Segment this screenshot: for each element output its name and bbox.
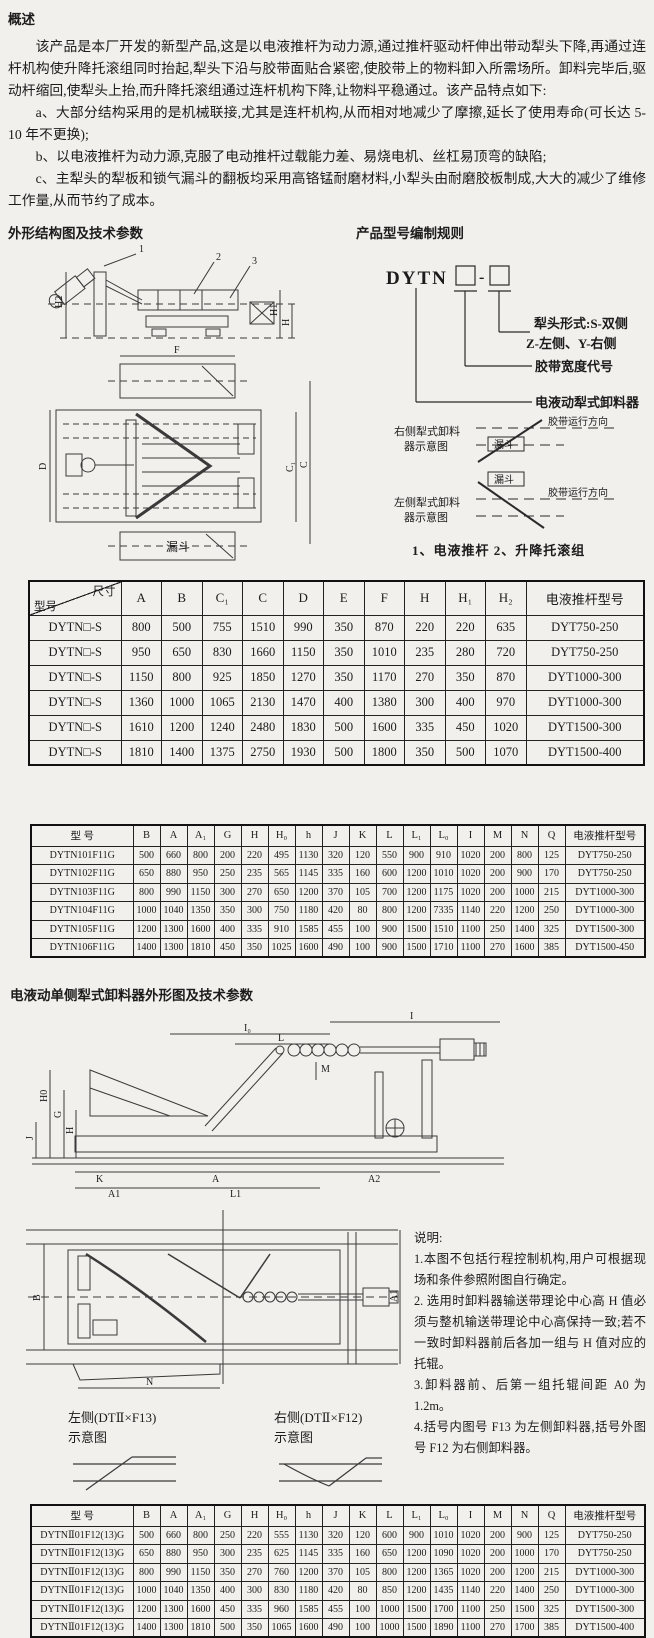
left-schematic-title2: 器示意图	[404, 510, 448, 524]
value-cell: 80	[349, 1582, 376, 1601]
value-cell: 880	[160, 1545, 187, 1564]
value-cell: 990	[283, 615, 324, 640]
column-header: K	[349, 825, 376, 846]
plow-form2-label: Z-左侧、Y-右侧	[526, 336, 617, 351]
callout-2-label: 2	[216, 252, 221, 263]
dimensions-table-dytn-f11g: 型 号BAA₁GHH₀hJKLL₁L₀IMNQ电液推杆型号DYTN101F11G…	[30, 824, 646, 958]
column-header: A₁	[187, 1505, 214, 1526]
value-cell: 1800	[364, 740, 405, 765]
dim-l1-label: L1	[230, 1189, 241, 1198]
value-cell: 800	[162, 665, 203, 690]
value-cell: 100	[349, 939, 376, 958]
value-cell: 350	[324, 665, 365, 690]
value-cell: 2750	[243, 740, 284, 765]
left-side-mini-drawing	[68, 1448, 183, 1494]
table-row: DYTNⅡ01F12(13)G1000104013504003008301180…	[31, 1582, 645, 1601]
value-cell: 500	[324, 740, 365, 765]
dim-c1-label: C₁	[285, 462, 296, 472]
value-cell: DYT750-250	[565, 1545, 645, 1564]
right-side-mini-block: 右侧(DTⅡ×F12) 示意图	[274, 1408, 410, 1494]
dim-a-label: A	[212, 1174, 220, 1185]
column-header: H₀	[268, 1505, 295, 1526]
value-cell: 200	[484, 1545, 511, 1564]
note-item-4: 4.括号内图号 F13 为左侧卸料器,括号外图号 F12 为右侧卸料器。	[414, 1417, 646, 1459]
value-cell: 1300	[160, 920, 187, 939]
value-cell: 350	[324, 640, 365, 665]
value-cell: 830	[202, 640, 243, 665]
value-cell: 1130	[295, 846, 322, 865]
value-cell: 900	[403, 1526, 430, 1545]
value-cell: 1140	[457, 1582, 484, 1601]
column-header: L₀	[430, 825, 457, 846]
column-header: A	[160, 825, 187, 846]
value-cell: 80	[349, 902, 376, 921]
value-cell: 1200	[403, 865, 430, 884]
plan-view-figure: B N A1 左侧(DTⅡ×F13) 示意图	[8, 1202, 410, 1494]
column-header: A	[121, 581, 162, 615]
value-cell: 120	[349, 846, 376, 865]
value-cell: 1300	[160, 939, 187, 958]
column-header: H	[241, 1505, 268, 1526]
value-cell: 760	[268, 1563, 295, 1582]
value-cell: 490	[322, 939, 349, 958]
column-header: M	[484, 825, 511, 846]
value-cell: 1350	[187, 1582, 214, 1601]
value-cell: 220	[405, 615, 446, 640]
value-cell: 125	[538, 1526, 565, 1545]
value-cell: 1150	[187, 1563, 214, 1582]
value-cell: 1175	[430, 883, 457, 902]
value-cell: 650	[133, 1545, 160, 1564]
value-cell: 1180	[295, 1582, 322, 1601]
plow-form-label: 犁头形式:S-双侧	[534, 316, 628, 331]
table-row: DYTNⅡ01F12(13)G8009901150350270760120037…	[31, 1563, 645, 1582]
value-cell: 200	[484, 883, 511, 902]
column-header: H	[405, 581, 446, 615]
value-cell: 700	[376, 883, 403, 902]
column-header: h	[295, 825, 322, 846]
value-cell: 1020	[457, 1526, 484, 1545]
structural-drawing: 1 2 3 H2 H1 H F D C₁ C 漏斗	[8, 242, 324, 564]
value-cell: 300	[241, 1582, 268, 1601]
value-cell: 2480	[243, 715, 284, 740]
table-row: DYTNⅡ01F12(13)G6508809503002356251145335…	[31, 1545, 645, 1564]
table-row: DYTN102F11G65088095025023556511453351606…	[31, 865, 645, 884]
value-cell: 1040	[160, 902, 187, 921]
column-header: D	[283, 581, 324, 615]
right-side-mini-drawing	[274, 1448, 389, 1494]
value-cell: 1710	[430, 939, 457, 958]
notes-panel: 说明: 1.本图不包括行程控制机构,用户可根据现场和条件参照附图自行确定。 2.…	[410, 1202, 646, 1494]
value-cell: 335	[322, 865, 349, 884]
value-cell: 800	[376, 1563, 403, 1582]
value-cell: 120	[349, 1526, 376, 1545]
model-cell: DYTN104F11G	[31, 902, 133, 921]
value-cell: 1040	[160, 1582, 187, 1601]
value-cell: 170	[538, 865, 565, 884]
value-cell: 450	[214, 939, 241, 958]
value-cell: 400	[214, 1582, 241, 1601]
value-cell: 1200	[511, 902, 538, 921]
dim-l-label: L	[278, 1033, 284, 1044]
value-cell: 200	[484, 1563, 511, 1582]
model-cell: DYTNⅡ01F12(13)G	[31, 1526, 133, 1545]
right-belt-direction-label: 胶带运行方向	[548, 415, 608, 428]
column-header: L	[376, 1505, 403, 1526]
value-cell: 500	[162, 615, 203, 640]
value-cell: 1200	[295, 1563, 322, 1582]
column-header: L₁	[403, 1505, 430, 1526]
belt-width-label: 胶带宽度代号	[535, 359, 613, 374]
column-header: H	[241, 825, 268, 846]
table-row: DYTNⅡ01F12(13)G1400130018105003501065160…	[31, 1619, 645, 1638]
value-cell: 100	[349, 1619, 376, 1638]
plan-view-drawing: B N A1	[8, 1202, 408, 1398]
value-cell: 235	[241, 865, 268, 884]
value-cell: 370	[322, 883, 349, 902]
value-cell: 1180	[295, 902, 322, 921]
value-cell: 720	[486, 640, 527, 665]
value-cell: 1270	[283, 665, 324, 690]
value-cell: DYT1000-300	[565, 902, 645, 921]
value-cell: 335	[241, 920, 268, 939]
column-header: L₁	[403, 825, 430, 846]
value-cell: 870	[486, 665, 527, 690]
value-cell: 970	[486, 690, 527, 715]
side-view-drawing: I I₀ L M H0 G H J K A A2 A1 L1	[20, 1010, 512, 1198]
column-header: I	[457, 1505, 484, 1526]
dim-i-label: I	[410, 1011, 413, 1022]
value-cell: 300	[214, 1545, 241, 1564]
value-cell: 1400	[162, 740, 203, 765]
value-cell: 565	[268, 865, 295, 884]
value-cell: 1200	[511, 1563, 538, 1582]
model-rule-column: 产品型号编制规则 DYTN - 犁头形式:S-双侧	[328, 222, 646, 564]
figure-legend: 1、电液推杆 2、升降托滚组	[412, 540, 646, 559]
value-cell: 1240	[202, 715, 243, 740]
table-row: DYTN106F11G14001300181045035010251600490…	[31, 939, 645, 958]
value-cell: 1065	[202, 690, 243, 715]
value-cell: 270	[405, 665, 446, 690]
value-cell: 660	[160, 1526, 187, 1545]
left-side-caption: 示意图	[68, 1428, 204, 1448]
value-cell: 800	[376, 902, 403, 921]
value-cell: 830	[268, 1582, 295, 1601]
column-header: h	[295, 1505, 322, 1526]
outline-figure-column: 外形结构图及技术参数	[8, 222, 328, 564]
model-cell: DYTNⅡ01F12(13)G	[31, 1563, 133, 1582]
hopper-label: 漏斗	[166, 540, 190, 554]
value-cell: 500	[214, 1619, 241, 1638]
value-cell: 300	[241, 902, 268, 921]
value-cell: DYT750-250	[526, 615, 644, 640]
value-cell: 800	[133, 883, 160, 902]
value-cell: 420	[322, 902, 349, 921]
value-cell: 320	[322, 846, 349, 865]
dim-h-label: H	[65, 1127, 76, 1134]
value-cell: 1610	[121, 715, 162, 740]
value-cell: 1020	[457, 865, 484, 884]
feature-a-paragraph: a、大部分结构采用的是机械联接,尤其是连杆机构,从而相对地减少了摩擦,延长了使用…	[8, 102, 646, 146]
callout-3-label: 3	[252, 256, 257, 267]
value-cell: 550	[376, 846, 403, 865]
value-cell: 1360	[121, 690, 162, 715]
dim-a1-right-label: A1	[389, 1290, 400, 1302]
value-cell: 950	[187, 865, 214, 884]
value-cell: 235	[405, 640, 446, 665]
value-cell: 1375	[202, 740, 243, 765]
column-header: G	[214, 825, 241, 846]
value-cell: 650	[133, 865, 160, 884]
value-cell: 400	[214, 920, 241, 939]
value-cell: 200	[484, 846, 511, 865]
column-header: B	[133, 825, 160, 846]
table-row: DYTN104F11G10001040135035030075011804208…	[31, 902, 645, 921]
right-side-caption: 示意图	[274, 1428, 410, 1448]
value-cell: 925	[202, 665, 243, 690]
value-cell: 1000	[511, 883, 538, 902]
model-cell: DYTN□-S	[29, 615, 121, 640]
dim-c-label: C	[299, 461, 310, 468]
value-cell: 1400	[133, 1619, 160, 1638]
value-cell: 870	[364, 615, 405, 640]
value-cell: 625	[268, 1545, 295, 1564]
model-cell: DYTN105F11G	[31, 920, 133, 939]
value-cell: 1010	[430, 865, 457, 884]
column-header: B	[133, 1505, 160, 1526]
value-cell: 1150	[187, 883, 214, 902]
value-cell: 1500	[403, 939, 430, 958]
header-row: 尺寸型号ABC₁CDEFHH₁H₂电液推杆型号	[29, 581, 644, 615]
value-cell: 1100	[457, 920, 484, 939]
value-cell: 1200	[295, 883, 322, 902]
value-cell: 1070	[486, 740, 527, 765]
note-item-2: 2. 选用时卸料器输送带理论中心高 H 值必须与整机输送带理论中心高保持一致;若…	[414, 1291, 646, 1375]
value-cell: 280	[445, 640, 486, 665]
column-header: C₁	[202, 581, 243, 615]
model-cell: DYTNⅡ01F12(13)G	[31, 1582, 133, 1601]
note-item-3: 3.卸料器前、后第一组托辊间距 A0 为 1.2m。	[414, 1375, 646, 1417]
value-cell: 100	[349, 920, 376, 939]
value-cell: 900	[376, 920, 403, 939]
value-cell: 385	[538, 1619, 565, 1638]
column-header: 电液推杆型号	[565, 1505, 645, 1526]
side-view-figure: I I₀ L M H0 G H J K A A2 A1 L1	[20, 1010, 646, 1198]
value-cell: 1150	[283, 640, 324, 665]
value-cell: 1300	[160, 1619, 187, 1638]
value-cell: 450	[445, 715, 486, 740]
column-header: N	[511, 1505, 538, 1526]
value-cell: 950	[187, 1545, 214, 1564]
value-cell: 320	[322, 1526, 349, 1545]
value-cell: 1000	[133, 1582, 160, 1601]
table-row: DYTN□-S181014001375275019305001800350500…	[29, 740, 644, 765]
dim-f-label: F	[174, 345, 180, 356]
column-header: H₀	[268, 825, 295, 846]
value-cell: 1830	[283, 715, 324, 740]
value-cell: 220	[241, 846, 268, 865]
value-cell: 900	[403, 846, 430, 865]
value-cell: 1470	[283, 690, 324, 715]
right-side-title: 右侧(DTⅡ×F12)	[274, 1408, 410, 1428]
value-cell: 455	[322, 920, 349, 939]
dimensions-table-dytn2-f12: 型 号BAA₁GHH₀hJKLL₁L₀IMNQ电液推杆型号DYTNⅡ01F12(…	[30, 1504, 646, 1638]
model-cell: DYTN□-S	[29, 665, 121, 690]
value-cell: 900	[511, 865, 538, 884]
value-cell: 490	[322, 1619, 349, 1638]
value-cell: 1170	[364, 665, 405, 690]
value-cell: 1000	[133, 902, 160, 921]
column-header: Q	[538, 825, 565, 846]
value-cell: 1600	[364, 715, 405, 740]
model-dash: -	[479, 269, 484, 286]
model-cell: DYTN102F11G	[31, 865, 133, 884]
value-cell: 2130	[243, 690, 284, 715]
outline-section-heading: 外形结构图及技术参数	[8, 222, 328, 242]
column-header: N	[511, 825, 538, 846]
value-cell: 500	[133, 1526, 160, 1545]
table-row: DYTN105F11G12001300160040033591015854551…	[31, 920, 645, 939]
value-cell: 1500	[403, 1619, 430, 1638]
value-cell: 650	[376, 1545, 403, 1564]
value-cell: 200	[484, 865, 511, 884]
value-cell: 270	[484, 1619, 511, 1638]
value-cell: 300	[405, 690, 446, 715]
value-cell: 500	[324, 715, 365, 740]
value-cell: 1200	[162, 715, 203, 740]
column-header: Q	[538, 1505, 565, 1526]
corner-top-label: 尺寸	[93, 583, 116, 599]
table-row: DYTN□-S136010001065213014704001380300400…	[29, 690, 644, 715]
model-cell: DYTN106F11G	[31, 939, 133, 958]
column-header: M	[484, 1505, 511, 1526]
value-cell: DYT1000-300	[565, 1582, 645, 1601]
value-cell: 125	[538, 846, 565, 865]
value-cell: 1065	[268, 1619, 295, 1638]
value-cell: 1365	[430, 1563, 457, 1582]
value-cell: 1810	[187, 1619, 214, 1638]
value-cell: 200	[484, 1526, 511, 1545]
dim-k-label: K	[96, 1174, 104, 1185]
column-header: H₁	[445, 581, 486, 615]
column-header: J	[322, 825, 349, 846]
value-cell: 950	[121, 640, 162, 665]
dim-g-label: G	[53, 1111, 64, 1118]
value-cell: 7335	[430, 902, 457, 921]
table-row: DYTN□-S8005007551510990350870220220635DY…	[29, 615, 644, 640]
value-cell: DYT1000-300	[565, 1563, 645, 1582]
dim-b-label: B	[32, 1294, 43, 1301]
value-cell: 500	[445, 740, 486, 765]
column-header: H₂	[486, 581, 527, 615]
value-cell: 270	[241, 1563, 268, 1582]
column-header: C	[243, 581, 284, 615]
value-cell: 370	[322, 1563, 349, 1582]
value-cell: 750	[268, 902, 295, 921]
value-cell: 350	[241, 1619, 268, 1638]
right-hopper-label: 漏斗	[494, 439, 514, 451]
value-cell: 1145	[295, 1545, 322, 1564]
dim-i0-label: I₀	[244, 1023, 251, 1034]
value-cell: 755	[202, 615, 243, 640]
dim-a2-label: A2	[368, 1174, 380, 1185]
model-cell: DYTN□-S	[29, 640, 121, 665]
value-cell: 800	[133, 1563, 160, 1582]
value-cell: 1100	[457, 939, 484, 958]
dim-a1-label: A1	[108, 1189, 120, 1198]
value-cell: 650	[268, 883, 295, 902]
value-cell: 250	[214, 1526, 241, 1545]
column-header: F	[364, 581, 405, 615]
value-cell: DYT1500-300	[565, 920, 645, 939]
value-cell: 350	[214, 1563, 241, 1582]
value-cell: 650	[162, 640, 203, 665]
model-rule-diagram: DYTN - 犁头形式:S-双侧 Z-左侧、Y-右侧 胶带宽度代号 电液动犁式卸…	[328, 244, 646, 534]
value-cell: 215	[538, 883, 565, 902]
value-cell: 990	[160, 883, 187, 902]
value-cell: 1810	[121, 740, 162, 765]
value-cell: 800	[511, 846, 538, 865]
column-header: L	[376, 825, 403, 846]
model-rule-heading: 产品型号编制规则	[356, 222, 646, 242]
value-cell: 250	[538, 1582, 565, 1601]
table-row: DYTN103F11G80099011503002706501200370105…	[31, 883, 645, 902]
corner-bottom-label: 型号	[34, 598, 57, 614]
value-cell: 1010	[430, 1526, 457, 1545]
value-cell: 350	[214, 902, 241, 921]
value-cell: 635	[486, 615, 527, 640]
value-cell: 350	[324, 615, 365, 640]
overview-paragraph: 该产品是本厂开发的新型产品,这是以电液推杆为动力源,通过推杆驱动杆伸出带动犁头下…	[8, 36, 646, 102]
value-cell: 1700	[511, 1619, 538, 1638]
note-item-1: 1.本图不包括行程控制机构,用户可根据现场和条件参照附图自行确定。	[414, 1249, 646, 1291]
model-cell: DYTNⅡ01F12(13)G	[31, 1545, 133, 1564]
value-cell: 170	[538, 1545, 565, 1564]
dim-j-label: J	[25, 1136, 36, 1140]
value-cell: 105	[349, 883, 376, 902]
value-cell: 1020	[457, 846, 484, 865]
notes-heading: 说明:	[414, 1228, 646, 1249]
value-cell: 1000	[376, 1619, 403, 1638]
value-cell: 800	[187, 846, 214, 865]
value-cell: 220	[484, 902, 511, 921]
value-cell: 1090	[430, 1545, 457, 1564]
value-cell: DYT1500-450	[565, 939, 645, 958]
value-cell: 1100	[457, 1619, 484, 1638]
value-cell: 1660	[243, 640, 284, 665]
column-header: A	[160, 1505, 187, 1526]
model-cell: DYTN□-S	[29, 690, 121, 715]
model-cell: DYTN□-S	[29, 740, 121, 765]
header-row: 型 号BAA₁GHH₀hJKLL₁L₀IMNQ电液推杆型号	[31, 1505, 645, 1526]
value-cell: 1400	[511, 1582, 538, 1601]
column-header: A₁	[187, 825, 214, 846]
plan-and-notes-row: B N A1 左侧(DTⅡ×F13) 示意图	[8, 1202, 646, 1494]
value-cell: 1600	[187, 920, 214, 939]
value-cell: 160	[349, 865, 376, 884]
value-cell: 1000	[162, 690, 203, 715]
value-cell: DYT1500-300	[526, 715, 644, 740]
model-cell: DYTNⅡ01F12(13)G	[31, 1619, 133, 1638]
value-cell: 1150	[121, 665, 162, 690]
value-cell: 1810	[187, 939, 214, 958]
overview-heading: 概述	[8, 8, 646, 28]
model-column-header: 尺寸型号	[29, 581, 121, 615]
left-belt-direction-label: 胶带运行方向	[548, 486, 608, 499]
value-cell: 1400	[511, 920, 538, 939]
column-header: B	[162, 581, 203, 615]
value-cell: 555	[268, 1526, 295, 1545]
